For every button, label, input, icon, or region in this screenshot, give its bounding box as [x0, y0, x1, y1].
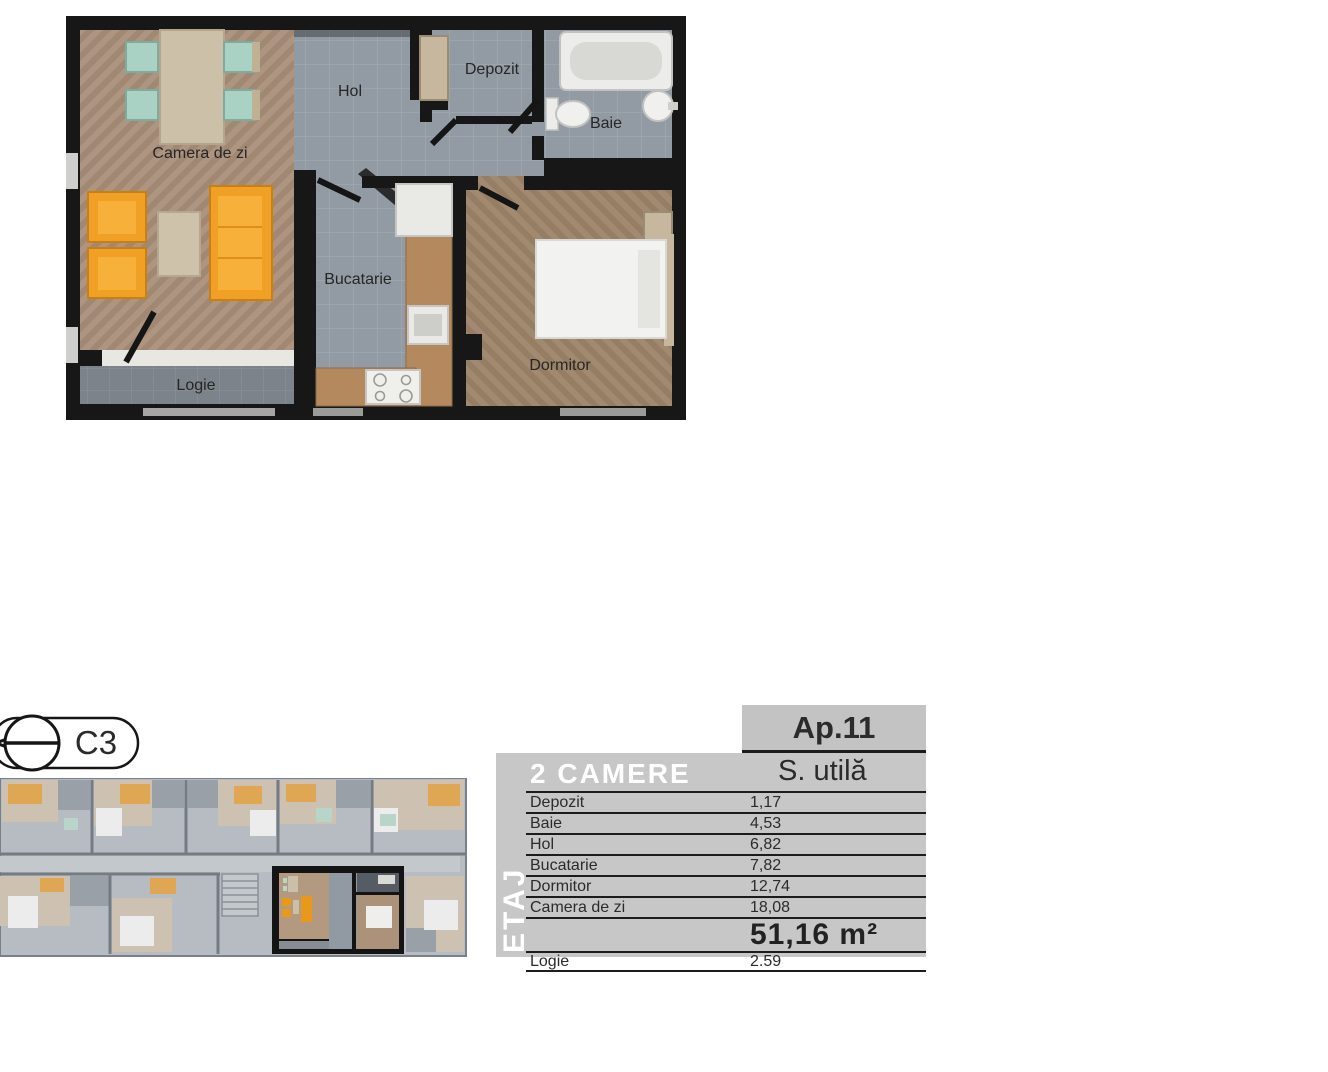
usable-area-column-label: S. utilă — [778, 755, 867, 788]
room-name: Bucatarie — [526, 857, 750, 875]
total-area-row: 51,16 m² — [526, 917, 926, 951]
hall-floor-right — [420, 122, 544, 176]
apartment-number: Ap.11 — [793, 710, 876, 746]
table-row: Camera de zi 18,08 — [526, 896, 926, 917]
table-rows: Depozit 1,17 Baie 4,53 Hol 6,82 Bucatari… — [526, 791, 926, 972]
room-area: 12,74 — [750, 878, 926, 896]
building-floor-overview — [0, 778, 468, 958]
hall-label: Hol — [338, 83, 362, 100]
total-area-value: 51,16 m² — [526, 918, 878, 952]
table-row: Baie 4,53 — [526, 812, 926, 833]
living-room-label: Camera de zi — [152, 145, 247, 162]
bathtub — [560, 32, 672, 90]
bathroom-label: Baie — [590, 115, 622, 132]
section-marker: C3 — [0, 704, 150, 776]
section-marker-label: C3 — [75, 724, 117, 761]
room-name: Dormitor — [526, 878, 750, 896]
staircase — [222, 874, 258, 916]
table-row: Bucatarie 7,82 — [526, 854, 926, 875]
area-panel: ETAJ 2 CAMERE S. utilă Depozit 1,17 Baie… — [496, 753, 926, 957]
room-name: Hol — [526, 836, 750, 854]
table-row: Dormitor 12,74 — [526, 875, 926, 896]
room-name: Depozit — [526, 794, 750, 812]
table-row-loggia: Logie 2.59 — [526, 951, 926, 972]
apartment-type-label: 2 CAMERE — [530, 758, 691, 790]
area-table: Ap.11 ETAJ 2 CAMERE S. utilă Depozit 1,1… — [496, 705, 926, 957]
room-area: 7,82 — [750, 857, 926, 875]
kitchen-label: Bucatarie — [324, 271, 392, 288]
room-name: Logie — [526, 953, 750, 971]
table-header: 2 CAMERE S. utilă — [496, 753, 926, 791]
room-area: 18,08 — [750, 899, 926, 917]
storage-label: Depozit — [465, 61, 520, 78]
room-area: 6,82 — [750, 836, 926, 854]
loggia-label: Logie — [176, 377, 215, 394]
room-name: Camera de zi — [526, 899, 750, 917]
apartment-floor-plan: Camera de zi Hol Depozit Baie Bucatarie … — [66, 16, 686, 420]
bedroom-label: Dormitor — [529, 357, 591, 374]
page: Camera de zi Hol Depozit Baie Bucatarie … — [0, 0, 1328, 1072]
table-row: Hol 6,82 — [526, 833, 926, 854]
room-area: 4,53 — [750, 815, 926, 833]
storage-wardrobe — [420, 36, 448, 100]
hall-floor — [294, 30, 420, 176]
room-area: 1,17 — [750, 794, 926, 812]
highlighted-apartment — [272, 866, 404, 954]
toilet — [546, 98, 590, 130]
stove — [366, 370, 420, 404]
room-area: 2.59 — [750, 953, 926, 971]
table-row: Depozit 1,17 — [526, 791, 926, 812]
room-name: Baie — [526, 815, 750, 833]
apartment-header: Ap.11 — [742, 705, 926, 753]
